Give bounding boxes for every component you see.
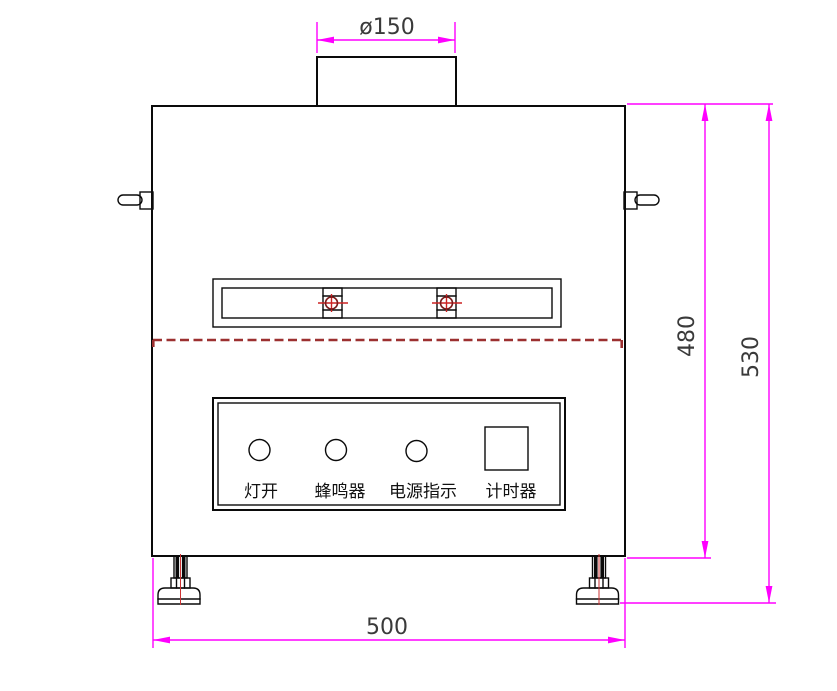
left-slider-block — [318, 288, 348, 318]
body-height-value: 480 — [675, 315, 700, 357]
body-height-dimension: 480 — [627, 104, 773, 558]
duct-diameter-value: ø150 — [359, 15, 414, 40]
arrow-up-icon — [702, 104, 709, 121]
door-parting-line — [153, 340, 622, 348]
timer-label: 计时器 — [486, 482, 537, 501]
foot-pad — [577, 588, 619, 604]
machine-front-view-drawing: ø150 — [0, 0, 837, 691]
power-indicator-light — [406, 441, 427, 462]
width-dimension: 500 — [153, 558, 625, 648]
slot-outer-frame — [213, 279, 561, 327]
left-handle — [118, 192, 153, 209]
left-handle-pin — [118, 195, 142, 205]
duct-diameter-dimension: ø150 — [317, 15, 455, 53]
exhaust-duct-outline — [317, 57, 456, 106]
control-panel: 灯开 蜂鸣器 电源指示 计时器 — [213, 398, 565, 510]
right-foot — [577, 554, 619, 605]
lamp-switch-label: 灯开 — [244, 482, 278, 501]
left-foot — [158, 554, 200, 605]
arrow-up-icon — [766, 104, 773, 121]
buzzer-button[interactable] — [326, 440, 347, 461]
buzzer-label: 蜂鸣器 — [315, 482, 366, 501]
width-value: 500 — [366, 615, 408, 640]
right-slider-block — [432, 288, 462, 318]
power-indicator-label: 电源指示 — [389, 482, 457, 501]
arrow-left-icon — [317, 37, 334, 44]
arrow-right-icon — [438, 37, 455, 44]
lamp-switch-button[interactable] — [249, 440, 270, 461]
right-handle-pin — [635, 195, 659, 205]
viewing-slot — [213, 279, 561, 327]
timer-display — [485, 427, 528, 470]
arrow-down-icon — [766, 586, 773, 603]
arrow-right-icon — [608, 637, 625, 644]
stem-thread-right — [600, 556, 604, 578]
arrow-down-icon — [702, 541, 709, 558]
stem-thread-left — [176, 556, 180, 578]
right-handle — [624, 192, 659, 209]
overall-height-value: 530 — [739, 336, 764, 378]
arrow-left-icon — [153, 637, 170, 644]
technical-drawing-canvas: ø150 — [0, 0, 837, 691]
foot-pad — [158, 588, 200, 604]
slot-inner-frame — [222, 288, 552, 318]
stem-thread-right — [182, 556, 186, 578]
stem-thread-left — [594, 556, 598, 578]
